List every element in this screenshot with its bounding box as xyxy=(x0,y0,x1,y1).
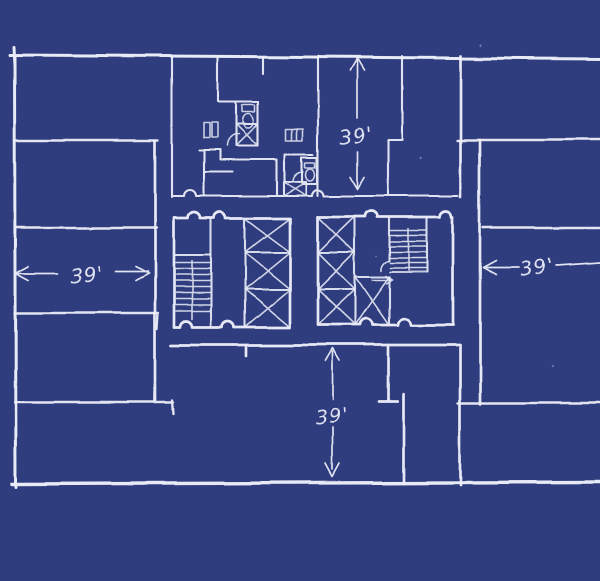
wc-partitions-left xyxy=(218,57,263,102)
section-south-wall xyxy=(172,190,458,196)
block-top-wall xyxy=(174,212,290,218)
shaft-x-box-2 xyxy=(284,182,306,196)
toilet-symbol-2 xyxy=(305,163,315,181)
arrowhead-right-icon xyxy=(136,266,149,280)
bottom-wall xyxy=(12,482,600,484)
stair-treads-right xyxy=(381,228,427,272)
door-swing-arc xyxy=(381,261,389,271)
block-bottom-wall xyxy=(174,321,290,327)
elevator-shaft-x-right xyxy=(319,218,388,324)
dimension-label-bottom: 39' xyxy=(314,403,350,430)
left-wall xyxy=(15,55,16,487)
top-wall xyxy=(10,55,600,59)
south-stub-wall xyxy=(379,345,397,401)
block-partitions xyxy=(211,218,245,327)
restroom-section xyxy=(172,56,458,197)
core-block-left xyxy=(174,212,290,327)
dimension-top: 39' xyxy=(338,58,374,189)
dimension-right: 39' xyxy=(483,253,600,281)
blueprint-floorplan-sketch: 39' 39' 39' 39' xyxy=(0,0,600,581)
wc-partition xyxy=(204,150,232,196)
core-block-right xyxy=(318,211,453,325)
step-wall xyxy=(388,56,402,196)
dimension-label-left: 39' xyxy=(69,261,105,288)
floorplan-canvas: 39' 39' 39' 39' xyxy=(0,0,600,581)
sink-counter-symbol xyxy=(286,129,303,141)
dimension-label-top: 39' xyxy=(338,121,374,148)
dimension-label-right: 39' xyxy=(519,253,556,281)
stair-treads-left xyxy=(176,261,210,319)
sink-symbol xyxy=(203,123,217,138)
elevator-dividers xyxy=(318,253,389,290)
wc-room-2-walls xyxy=(302,158,317,184)
elevator-shaft-x-left xyxy=(246,219,289,326)
dimension-left: 39' xyxy=(16,261,149,288)
block-top-wall xyxy=(318,211,453,217)
dimension-bottom: 39' xyxy=(314,349,350,477)
